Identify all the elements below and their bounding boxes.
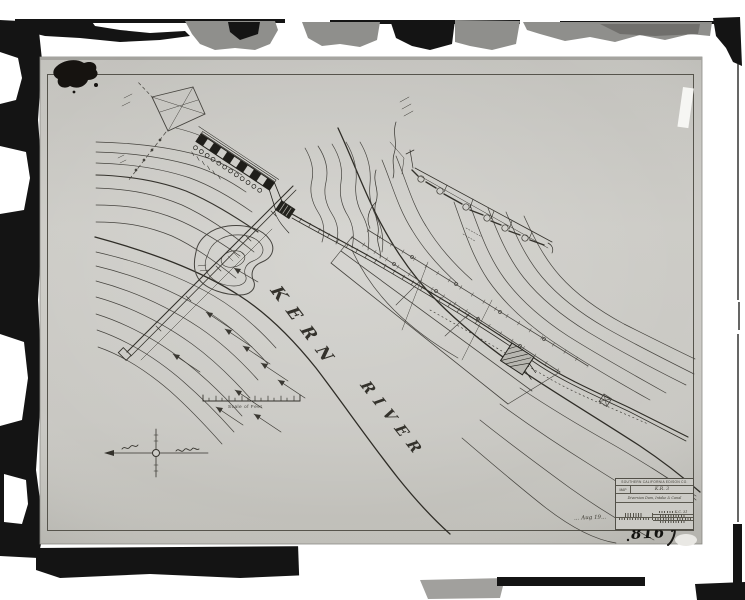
- title-block-date-cell: [616, 518, 652, 520]
- title-block-sheet-no: K.R. 3: [631, 487, 693, 492]
- title-block-drawing-no: K.C. 31: [675, 510, 688, 514]
- title-block-row: [653, 521, 693, 523]
- illegible-handwriting: [625, 513, 643, 517]
- title-block-drawing-title: Diversion Dam, Intake & Canal: [616, 494, 693, 503]
- title-block: SOUTHERN CALIFORNIA EDISON CO. MAP K.R. …: [615, 478, 694, 530]
- title-block-map-label: MAP: [616, 486, 631, 493]
- drawing-sheet: [40, 57, 702, 544]
- scale-caption: Scale of Feet: [228, 404, 262, 409]
- handwritten-note: … Aug 19…: [574, 514, 607, 521]
- title-block-company: SOUTHERN CALIFORNIA EDISON CO.: [616, 479, 693, 486]
- illegible-handwriting: [660, 515, 686, 517]
- photo-of-engineering-drawing: KERN RIVER Scale of Feet … Aug 19… 816 S…: [0, 0, 745, 600]
- illegible-handwriting: [677, 518, 691, 520]
- illegible-handwriting: [659, 511, 673, 513]
- illegible-handwriting: [655, 518, 675, 520]
- illegible-handwriting: [660, 521, 686, 523]
- illegible-handwriting: [635, 518, 649, 520]
- illegible-handwriting: [619, 518, 633, 520]
